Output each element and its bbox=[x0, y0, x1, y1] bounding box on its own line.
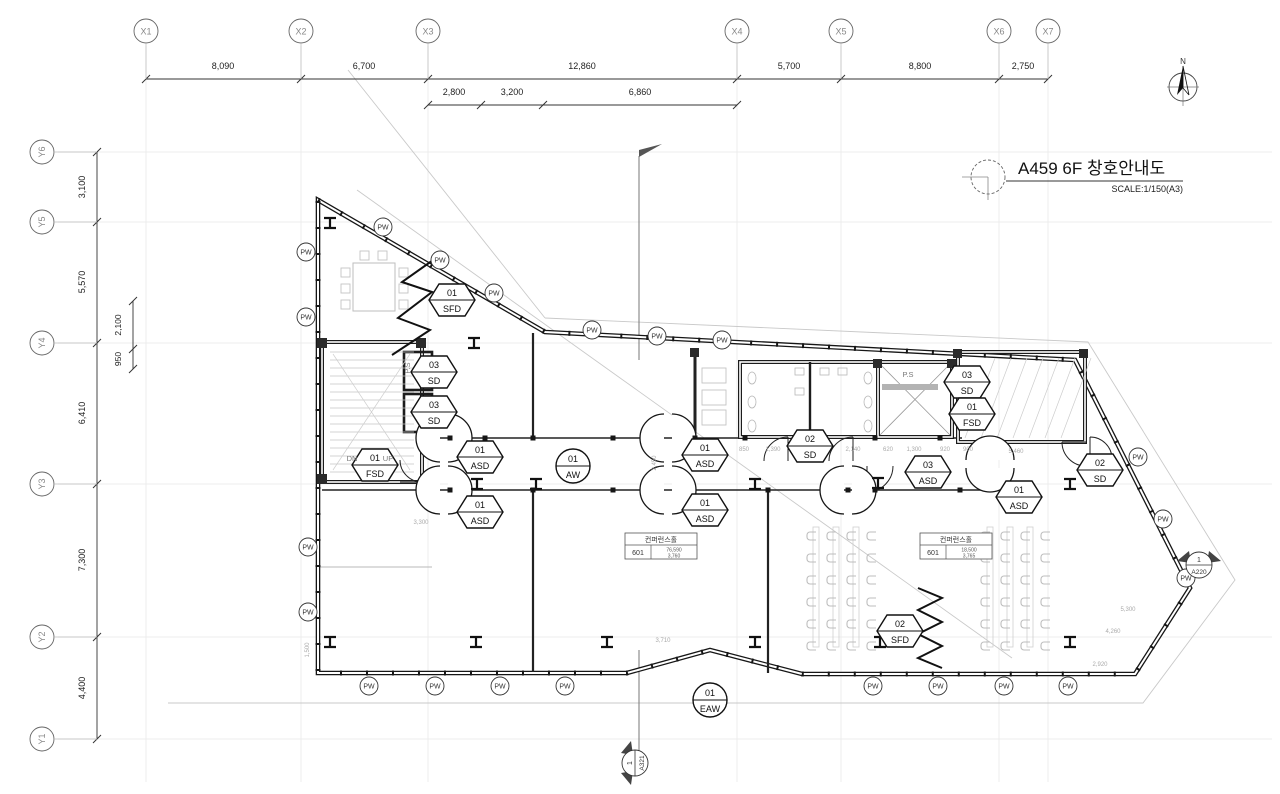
svg-text:SFD: SFD bbox=[443, 304, 462, 314]
svg-text:PW: PW bbox=[1132, 455, 1144, 462]
pw-tag: PW bbox=[374, 218, 392, 236]
svg-text:601: 601 bbox=[632, 550, 644, 557]
svg-text:ASD: ASD bbox=[471, 461, 490, 471]
window-tag-aw-01: 01AW bbox=[556, 449, 590, 483]
pw-tag: PW bbox=[556, 677, 574, 695]
pw-tag: PW bbox=[864, 677, 882, 695]
north-arrow: N bbox=[1167, 57, 1199, 106]
svg-text:X5: X5 bbox=[835, 27, 846, 37]
window-tag-sd-02: 02SD bbox=[1077, 454, 1123, 486]
plan-label: P.S bbox=[403, 362, 412, 373]
detail-dimension: 2,450 bbox=[652, 455, 658, 471]
pw-tag: PW bbox=[583, 321, 601, 339]
svg-text:PW: PW bbox=[302, 545, 314, 552]
pw-tag: PW bbox=[360, 677, 378, 695]
window-tag-eaw-01: 01EAW bbox=[693, 683, 727, 717]
svg-text:PW: PW bbox=[300, 250, 312, 257]
y-dimension: 4,400 bbox=[77, 677, 87, 700]
pw-tag: PW bbox=[1059, 677, 1077, 695]
grid-bubble-Y6: Y6 bbox=[30, 140, 54, 164]
svg-text:컨퍼런스홀: 컨퍼런스홀 bbox=[940, 535, 973, 544]
svg-text:ASD: ASD bbox=[696, 514, 715, 524]
svg-text:SD: SD bbox=[1094, 474, 1107, 484]
pw-tag: PW bbox=[648, 327, 666, 345]
window-tag-asd-01: 01ASD bbox=[457, 496, 503, 528]
grid-bubble-X6: X6 bbox=[987, 19, 1011, 43]
detail-dimension: 1,300 bbox=[906, 447, 922, 453]
y-dimension: 6,410 bbox=[77, 402, 87, 425]
svg-text:PW: PW bbox=[363, 684, 375, 691]
pw-tag: PW bbox=[995, 677, 1013, 695]
svg-text:PW: PW bbox=[429, 684, 441, 691]
room-tag: 컨퍼런스홀60176,5903,760 bbox=[625, 533, 697, 560]
plan-label: UP bbox=[383, 454, 393, 463]
svg-text:PW: PW bbox=[1157, 517, 1169, 524]
svg-text:X4: X4 bbox=[731, 27, 742, 37]
detail-dimension: 1,390 bbox=[765, 447, 781, 453]
svg-text:PW: PW bbox=[300, 315, 312, 322]
detail-dimension: 1,500 bbox=[305, 642, 311, 658]
svg-text:X7: X7 bbox=[1042, 27, 1053, 37]
detail-dimension: 850 bbox=[739, 447, 750, 453]
north-label: N bbox=[1180, 57, 1186, 66]
grid-bubble-Y4: Y4 bbox=[30, 331, 54, 355]
grid-bubble-X2: X2 bbox=[289, 19, 313, 43]
pw-tag: PW bbox=[713, 331, 731, 349]
grid-bubble-X7: X7 bbox=[1036, 19, 1060, 43]
x-dimension: 6,700 bbox=[353, 61, 376, 71]
window-tag-asd-01: 01ASD bbox=[996, 481, 1042, 513]
svg-text:SD: SD bbox=[428, 376, 441, 386]
window-tag-sfd-01: 01SFD bbox=[429, 284, 475, 316]
y-dimension: 5,570 bbox=[77, 271, 87, 294]
y-subdimension: 2,100 bbox=[113, 314, 123, 336]
grid-bubble-X3: X3 bbox=[416, 19, 440, 43]
detail-dimension: 2,140 bbox=[845, 447, 861, 453]
x-dimension: 2,750 bbox=[1012, 61, 1035, 71]
window-tag-asd-03: 03ASD bbox=[905, 456, 951, 488]
y-dimension: 3,100 bbox=[77, 176, 87, 199]
svg-text:PW: PW bbox=[488, 291, 500, 298]
pw-tag: PW bbox=[426, 677, 444, 695]
svg-text:SD: SD bbox=[961, 386, 974, 396]
grid-bubble-Y5: Y5 bbox=[30, 210, 54, 234]
pw-tag: PW bbox=[299, 538, 317, 556]
svg-text:FSD: FSD bbox=[963, 418, 982, 428]
svg-text:02: 02 bbox=[1095, 458, 1105, 468]
svg-text:03: 03 bbox=[962, 370, 972, 380]
grid-bubble-X5: X5 bbox=[829, 19, 853, 43]
svg-text:1: 1 bbox=[1197, 557, 1201, 564]
svg-text:01: 01 bbox=[700, 498, 710, 508]
detail-dimension: 5,300 bbox=[1120, 607, 1136, 613]
svg-text:Y2: Y2 bbox=[37, 631, 47, 642]
svg-text:PW: PW bbox=[559, 684, 571, 691]
svg-text:01: 01 bbox=[475, 445, 485, 455]
pw-tag: PW bbox=[491, 677, 509, 695]
svg-text:A220: A220 bbox=[1191, 569, 1207, 576]
x-dimension: 8,800 bbox=[909, 61, 932, 71]
svg-text:X2: X2 bbox=[295, 27, 306, 37]
svg-text:01: 01 bbox=[370, 453, 380, 463]
svg-text:PW: PW bbox=[302, 610, 314, 617]
svg-text:Y4: Y4 bbox=[37, 337, 47, 348]
window-tag-sd-03: 03SD bbox=[411, 396, 457, 428]
svg-text:01: 01 bbox=[447, 288, 457, 298]
drawing-scale: SCALE:1/150(A3) bbox=[1111, 184, 1183, 194]
svg-text:3,760: 3,760 bbox=[668, 554, 681, 560]
svg-text:02: 02 bbox=[895, 619, 905, 629]
detail-dimension: 3,710 bbox=[655, 638, 671, 644]
pw-tag: PW bbox=[299, 603, 317, 621]
svg-text:02: 02 bbox=[805, 434, 815, 444]
grid-bubble-X4: X4 bbox=[725, 19, 749, 43]
x-dimension: 12,860 bbox=[568, 61, 596, 71]
svg-text:PW: PW bbox=[998, 684, 1010, 691]
svg-text:Y3: Y3 bbox=[37, 478, 47, 489]
window-tag-asd-01: 01ASD bbox=[457, 441, 503, 473]
svg-text:PW: PW bbox=[494, 684, 506, 691]
svg-text:Y6: Y6 bbox=[37, 146, 47, 157]
svg-text:SFD: SFD bbox=[891, 635, 910, 645]
svg-text:01: 01 bbox=[700, 443, 710, 453]
window-tag-asd-01: 01ASD bbox=[682, 439, 728, 471]
y-dimension: 7,300 bbox=[77, 549, 87, 572]
drawing-title: A459 6F 창호안내도 bbox=[1018, 159, 1165, 178]
pw-tag: PW bbox=[1129, 448, 1147, 466]
svg-text:1: 1 bbox=[627, 761, 634, 765]
svg-text:ASD: ASD bbox=[696, 459, 715, 469]
svg-text:AW: AW bbox=[566, 470, 581, 480]
construction-grid bbox=[58, 46, 1272, 782]
plan-label: DN bbox=[347, 454, 358, 463]
svg-text:03: 03 bbox=[923, 460, 933, 470]
svg-text:컨퍼런스홀: 컨퍼런스홀 bbox=[645, 535, 678, 544]
svg-text:PW: PW bbox=[716, 338, 728, 345]
x-dimension: 5,700 bbox=[778, 61, 801, 71]
window-tag-fsd-01: 01FSD bbox=[949, 398, 995, 430]
svg-text:X3: X3 bbox=[422, 27, 433, 37]
pw-tag: PW bbox=[297, 243, 315, 261]
svg-text:PW: PW bbox=[1062, 684, 1074, 691]
detail-dimension: 4,260 bbox=[1105, 629, 1121, 635]
svg-text:SD: SD bbox=[804, 450, 817, 460]
room-tag: 컨퍼런스홀60118,5003,765 bbox=[920, 533, 992, 560]
plan-label: P.S bbox=[902, 370, 913, 379]
floorplan-svg: X1X2X3X4X5X6X78,0906,70012,8605,7008,800… bbox=[0, 0, 1280, 794]
pw-tag: PW bbox=[929, 677, 947, 695]
svg-text:PW: PW bbox=[651, 334, 663, 341]
svg-text:01: 01 bbox=[568, 454, 578, 464]
pw-tag: PW bbox=[485, 284, 503, 302]
svg-text:X6: X6 bbox=[993, 27, 1004, 37]
x-subdimension: 3,200 bbox=[501, 87, 524, 97]
svg-text:01: 01 bbox=[475, 500, 485, 510]
x-dimension: 8,090 bbox=[212, 61, 235, 71]
svg-text:PW: PW bbox=[586, 328, 598, 335]
svg-text:ASD: ASD bbox=[919, 476, 938, 486]
svg-text:ASD: ASD bbox=[471, 516, 490, 526]
svg-text:Y1: Y1 bbox=[37, 733, 47, 744]
detail-dimension: 3,300 bbox=[413, 520, 429, 526]
grid-bubble-Y1: Y1 bbox=[30, 727, 54, 751]
detail-dimension: 900 bbox=[963, 447, 974, 453]
x-subdimension: 2,800 bbox=[443, 87, 466, 97]
svg-text:3,765: 3,765 bbox=[963, 554, 976, 560]
svg-text:PW: PW bbox=[867, 684, 879, 691]
detail-dimension: 920 bbox=[940, 447, 951, 453]
svg-text:Y5: Y5 bbox=[37, 216, 47, 227]
grid-bubble-X1: X1 bbox=[134, 19, 158, 43]
svg-text:X1: X1 bbox=[140, 27, 151, 37]
svg-text:FSD: FSD bbox=[366, 469, 385, 479]
svg-text:PW: PW bbox=[434, 258, 446, 265]
svg-text:01: 01 bbox=[705, 688, 715, 698]
svg-text:03: 03 bbox=[429, 360, 439, 370]
title-block: A459 6F 창호안내도 SCALE:1/150(A3) bbox=[962, 159, 1183, 200]
detail-dimension: 2,920 bbox=[1092, 662, 1108, 668]
grid-bubble-Y2: Y2 bbox=[30, 625, 54, 649]
svg-text:601: 601 bbox=[927, 550, 939, 557]
detail-dimension: 620 bbox=[883, 447, 894, 453]
detail-dimension: 5,460 bbox=[1008, 449, 1024, 455]
svg-text:PW: PW bbox=[932, 684, 944, 691]
svg-text:EAW: EAW bbox=[700, 704, 721, 714]
svg-text:A321: A321 bbox=[639, 755, 646, 771]
svg-text:SD: SD bbox=[428, 416, 441, 426]
floorplan-drawing: X1X2X3X4X5X6X78,0906,70012,8605,7008,800… bbox=[0, 0, 1280, 794]
svg-text:03: 03 bbox=[429, 400, 439, 410]
svg-text:01: 01 bbox=[967, 402, 977, 412]
section-marker-a321: 1A321 bbox=[621, 741, 648, 785]
y-subdimension: 950 bbox=[113, 352, 123, 366]
pw-tag: PW bbox=[297, 308, 315, 326]
window-tag-sfd-02: 02SFD bbox=[877, 615, 923, 647]
svg-text:PW: PW bbox=[1180, 576, 1192, 583]
window-tag-sd-03: 03SD bbox=[411, 356, 457, 388]
pw-tag: PW bbox=[431, 251, 449, 269]
window-tag-sd-03: 03SD bbox=[944, 366, 990, 398]
svg-text:01: 01 bbox=[1014, 485, 1024, 495]
svg-text:ASD: ASD bbox=[1010, 501, 1029, 511]
x-subdimension: 6,860 bbox=[629, 87, 652, 97]
window-tag-asd-01: 01ASD bbox=[682, 494, 728, 526]
pw-tag: PW bbox=[1154, 510, 1172, 528]
window-tag-sd-02: 02SD bbox=[787, 430, 833, 462]
grid-bubble-Y3: Y3 bbox=[30, 472, 54, 496]
svg-text:PW: PW bbox=[377, 225, 389, 232]
